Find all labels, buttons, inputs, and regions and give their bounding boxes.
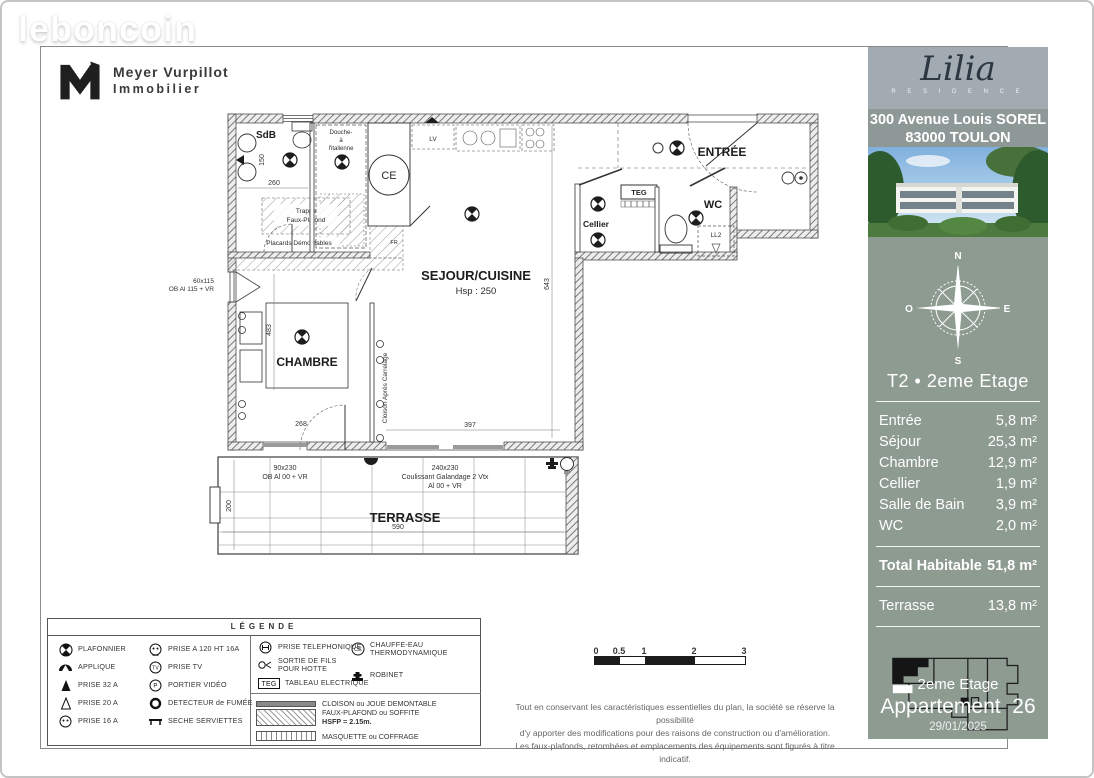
agency-logo: Meyer Vurpillot Immobilier [57, 58, 229, 104]
portier-video-icon: P [148, 679, 163, 692]
ce-label: CE [381, 170, 396, 182]
terrasse-dim-d: 200 [226, 500, 233, 512]
teg-icon: TEG [258, 677, 280, 690]
sdb-dim-w: 260 [268, 180, 280, 187]
room-wc: WC LL2 [655, 168, 734, 256]
cellier-label: Cellier [583, 219, 610, 229]
areas-table: Entrée5,8 m² Séjour25,3 m² Chambre12,9 m… [879, 411, 1037, 537]
ce-closet: CE [368, 123, 430, 226]
plafonnier-icon [670, 141, 684, 155]
teg-label: TEG [631, 188, 647, 197]
terr-win1-size: 90x230 [274, 465, 297, 472]
footer-floor: 2eme Etage [868, 676, 1048, 693]
ce-door [410, 206, 430, 226]
ll2-label: LL2 [711, 232, 722, 239]
left-window-label: 60x115 OB Al 115 + VR [158, 278, 214, 295]
area-row: Chambre12,9 m² [879, 453, 1037, 474]
left-window-type: OB Al 115 + VR [158, 286, 214, 294]
left-window [228, 272, 260, 302]
prise-tv-icon: TV [148, 661, 163, 674]
prise-16a-icon [58, 715, 73, 728]
residence-address: 300 Avenue Louis SOREL 83000 TOULON [868, 109, 1048, 147]
legend-item-robinet: ROBINET [350, 669, 403, 682]
divider [876, 401, 1040, 402]
legend-divider-v [250, 635, 251, 745]
legend-item-prise16: PRISE 16 A [58, 715, 118, 728]
sejour-hsp: Hsp : 250 [456, 286, 497, 297]
chambre-dim-door: 268 [295, 421, 307, 428]
plafonnier-icon [295, 330, 309, 344]
area-row: Entrée5,8 m² [879, 411, 1037, 432]
agency-name: Meyer Vurpillot Immobilier [113, 64, 229, 97]
douche-label-1: Douche- [330, 130, 353, 136]
floor-plan: Trappe Faux-Plafond Placards Démontables… [208, 98, 848, 568]
agency-m-icon [57, 58, 103, 104]
terrace: 90x230 OB Al 00 + VR 240x230 Coulissant … [210, 457, 578, 554]
sejour-label: SEJOUR/CUISINE [421, 268, 531, 283]
room-cellier: TEG Cellier [575, 169, 657, 252]
scale-bar-segments [594, 656, 746, 665]
sdb-dim-h: 150 [259, 154, 266, 166]
applique-icon [58, 661, 73, 674]
divider [876, 586, 1040, 587]
compass-e: E [1004, 304, 1011, 315]
agency-name-line2: Immobilier [113, 82, 229, 98]
compass-o: O [905, 304, 913, 315]
cloison-label: Cloison Après Carrelage [382, 352, 389, 423]
terr-win2-type: Coulissant Galandage 2 Vtx [402, 474, 489, 481]
leboncoin-watermark: leboncoin [18, 8, 197, 50]
area-row: Séjour25,3 m² [879, 432, 1037, 453]
chambre-partition: Cloison Après Carrelage [356, 268, 389, 442]
legend-wall-cloison: CLOISON ou JOUE DEMONTABLE [256, 699, 437, 708]
legend-item-sortie-fils: SORTIE DE FILS POUR HOTTE [258, 657, 346, 674]
sdb-applique-icon [236, 155, 244, 165]
footer-apartment: Appartement 26 [868, 695, 1048, 719]
trappe-label-2: Faux-Plafond [287, 217, 326, 224]
sdb-window [283, 116, 313, 122]
ep-label: EP [564, 470, 570, 475]
intercom-icon [782, 172, 794, 184]
douche-label-2: à [339, 138, 343, 144]
area-row: Salle de Bain3,9 m² [879, 495, 1037, 516]
divider [876, 626, 1040, 627]
room-chambre: CHAMBRE 483 268 [239, 274, 349, 450]
plafonnier-icon [591, 233, 605, 247]
sdb-toilet-tank [292, 122, 312, 131]
footer-date: 29/01/2025 [868, 721, 1048, 733]
terrasse-dim-w: 590 [392, 524, 404, 531]
compass-s: S [955, 356, 962, 367]
plafonnier-icon [465, 207, 479, 221]
prise-120-icon [148, 643, 163, 656]
legend-item-detecteur: DETECTEUR de FUMÉE [148, 697, 253, 710]
plafonnier-icon [58, 643, 73, 656]
wc-label: WC [704, 199, 722, 211]
lv-label: LV [429, 136, 437, 143]
chauffe-eau-icon: CE [350, 643, 365, 656]
terr-win1-type: OB Al 00 + VR [262, 474, 307, 481]
scale-bar: 0 0.5 1 2 3 [594, 646, 746, 665]
sejour-dim-h: 643 [544, 278, 551, 290]
faux-plafond-swatch [256, 709, 316, 726]
svg-text:P: P [153, 684, 157, 690]
chambre-dim-h: 483 [266, 324, 273, 336]
bed-icon [266, 303, 348, 388]
placards-label: Placards Démontables [266, 240, 332, 247]
chambre-label: CHAMBRE [276, 355, 337, 369]
residence-photo [868, 147, 1048, 237]
terrasse-label: TERRASSE [370, 510, 441, 525]
wc-toilet-bowl [665, 215, 687, 243]
fr-label: FR [390, 240, 397, 246]
terr-win2-type2: Al 00 + VR [428, 483, 462, 490]
legend-item-telephonique: PRISE TELEPHONIQUE [258, 641, 361, 654]
scale-ticks: 0 0.5 1 2 3 [594, 646, 746, 656]
legend-item-portier: P PORTIER VIDÉO [148, 679, 227, 692]
prise-32a-icon [58, 679, 73, 692]
masquette-swatch [256, 731, 316, 741]
legend-divider-h [250, 693, 481, 694]
seche-serviettes-icon [148, 715, 163, 728]
residence-logo: Lilia [868, 47, 1048, 91]
legend-box: LÉGENDE PLAFONNIER APPLIQUE PRISE 32 A P… [47, 618, 481, 746]
svg-text:TV: TV [152, 666, 159, 672]
room-entree: ENTRÉE [578, 115, 808, 192]
svg-text:TEG: TEG [262, 681, 277, 688]
area-row: WC2,0 m² [879, 516, 1037, 537]
sortie-fils-icon [258, 659, 273, 672]
plafonnier-icon [591, 197, 605, 211]
info-sidebar: Lilia R E S I D E N C E 300 Avenue Louis… [868, 47, 1048, 739]
terr-win2-size: 240x230 [432, 465, 459, 472]
disclaimer-text: Tout en conservant les caractéristiques … [499, 701, 851, 765]
ll2-box [698, 226, 734, 256]
robinet-icon [350, 669, 365, 682]
svg-text:CE: CE [353, 647, 361, 653]
total-row: Total Habitable51,8 m² [879, 556, 1037, 577]
cloison-swatch [256, 701, 316, 707]
legend-item-prise20: PRISE 20 A [58, 697, 118, 710]
terrace-row: Terrasse13,8 m² [879, 596, 1037, 617]
agency-name-line1: Meyer Vurpillot [113, 64, 229, 82]
ep-circle [561, 458, 574, 471]
legend-item-prisetv: TV PRISE TV [148, 661, 202, 674]
plafonnier-icon [335, 155, 349, 169]
residence-subtitle: R E S I D E N C E [868, 89, 1048, 95]
entree-label: ENTRÉE [698, 144, 747, 159]
room-sejour: SEJOUR/CUISINE Hsp : 250 643 397 [386, 126, 560, 438]
legend-wall-fauxplafond: FAUX-PLAFOND ou SOFFITE HSFP = 2.15m. [256, 708, 419, 726]
douche-label-3: l'italienne [329, 146, 354, 152]
compass-rose: N S E O [903, 249, 1013, 367]
plafonnier-icon [689, 211, 703, 225]
legend-item-prise120: PRISE A 120 HT 16A [148, 643, 239, 656]
legend-item-prise32: PRISE 32 A [58, 679, 118, 692]
divider [876, 546, 1040, 547]
left-window-size: 60x115 [158, 278, 214, 286]
pillar [210, 487, 220, 523]
legend-item-applique: APPLIQUE [58, 661, 116, 674]
sdb-toilet-bowl [293, 132, 311, 148]
screenshot-canvas: leboncoin Meyer Vurpillot Immobilier [0, 0, 1094, 778]
sejour-dim-w: 397 [464, 422, 476, 429]
nightstand [240, 312, 262, 344]
legend-item-chauffe-eau: CE CHAUFFE-EAU THERMODYNAMIQUE [350, 641, 476, 658]
legend-item-seche: SECHE SERVIETTES [148, 715, 243, 728]
prise-telephonique-icon [258, 641, 273, 654]
prise-20a-icon [58, 697, 73, 710]
legend-wall-masquette: MASQUETTE ou COFFRAGE [256, 731, 419, 741]
compass-n: N [954, 251, 961, 262]
plafonnier-icon [283, 153, 297, 167]
area-row: Cellier1,9 m² [879, 474, 1037, 495]
legend-item-plafonnier: PLAFONNIER [58, 643, 126, 656]
residence-header: Lilia R E S I D E N C E [868, 47, 1048, 109]
sdb-label: SdB [256, 130, 276, 141]
legend-title: LÉGENDE [48, 619, 480, 636]
unit-title: T2 • 2eme Etage [868, 371, 1048, 392]
detecteur-fumee-icon [148, 697, 163, 710]
sidebar-footer: 2eme Etage Appartement 26 29/01/2025 [868, 676, 1048, 733]
nightstand [240, 350, 262, 382]
